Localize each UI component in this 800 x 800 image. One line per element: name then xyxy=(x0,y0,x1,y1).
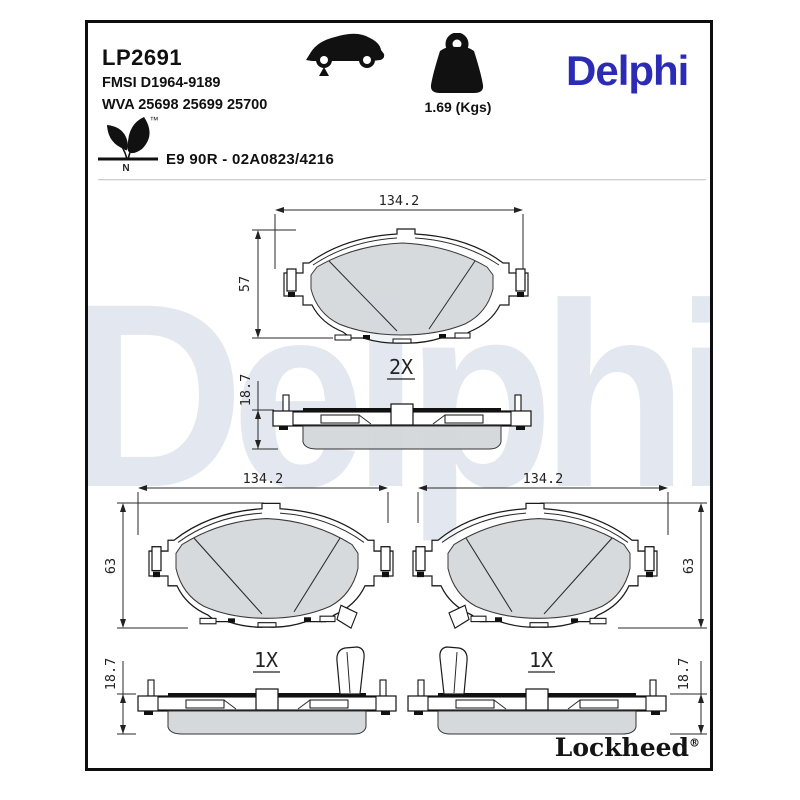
dim-fv3-width: 134.2 xyxy=(523,471,564,487)
weight-icon xyxy=(426,33,488,97)
side-view-left: 1X 18.7 xyxy=(103,647,396,734)
wva-reference: WVA 25698 25699 25700 xyxy=(102,97,267,113)
registered-mark: ® xyxy=(689,737,700,750)
dim-fv3-height: 63 xyxy=(681,558,697,574)
homologation-number: E9 90R - 02A0823/4216 xyxy=(166,151,334,168)
dim-fv1-width: 134.2 xyxy=(379,193,420,209)
front-view-right: 134.2 63 xyxy=(413,471,707,628)
leaf-letter: N xyxy=(122,163,129,173)
side-view-top: 2X 18.7 xyxy=(238,355,531,449)
technical-drawings: 134.2 57 2X 18.7 1 xyxy=(88,183,713,771)
side-view-right: 1X 18.7 xyxy=(408,647,707,734)
front-axle-arrow-icon xyxy=(319,67,329,76)
dim-sv2-thickness: 18.7 xyxy=(103,658,119,691)
qty-sv3: 1X xyxy=(529,648,553,672)
dim-sv1-thickness: 18.7 xyxy=(238,374,254,407)
qty-sv1: 2X xyxy=(389,355,413,379)
header-divider xyxy=(98,179,706,181)
car-icon xyxy=(302,29,388,77)
datasheet-page: Delphi LP2691 FMSI D1964-9189 WVA 25698 … xyxy=(85,20,713,771)
eco-leaf-icon: N ™ xyxy=(94,113,164,173)
delphi-logo: Delphi xyxy=(566,47,688,95)
fmsi-reference: FMSI D1964-9189 xyxy=(102,75,220,91)
dim-fv2-height: 63 xyxy=(103,558,119,574)
front-view-left: 134.2 63 xyxy=(103,471,393,628)
qty-sv2: 1X xyxy=(254,648,278,672)
weight-label: 1.69 (Kgs) xyxy=(396,99,520,115)
dim-sv3-thickness: 18.7 xyxy=(676,658,692,691)
lockheed-wordmark: Lockheed xyxy=(555,733,689,762)
part-number: LP2691 xyxy=(102,45,182,71)
lockheed-logo: Lockheed® xyxy=(555,733,700,762)
dim-fv2-width: 134.2 xyxy=(243,471,284,487)
leaf-trademark: ™ xyxy=(150,115,159,125)
front-view-top: 134.2 57 xyxy=(237,193,528,343)
dim-fv1-height: 57 xyxy=(237,276,253,292)
